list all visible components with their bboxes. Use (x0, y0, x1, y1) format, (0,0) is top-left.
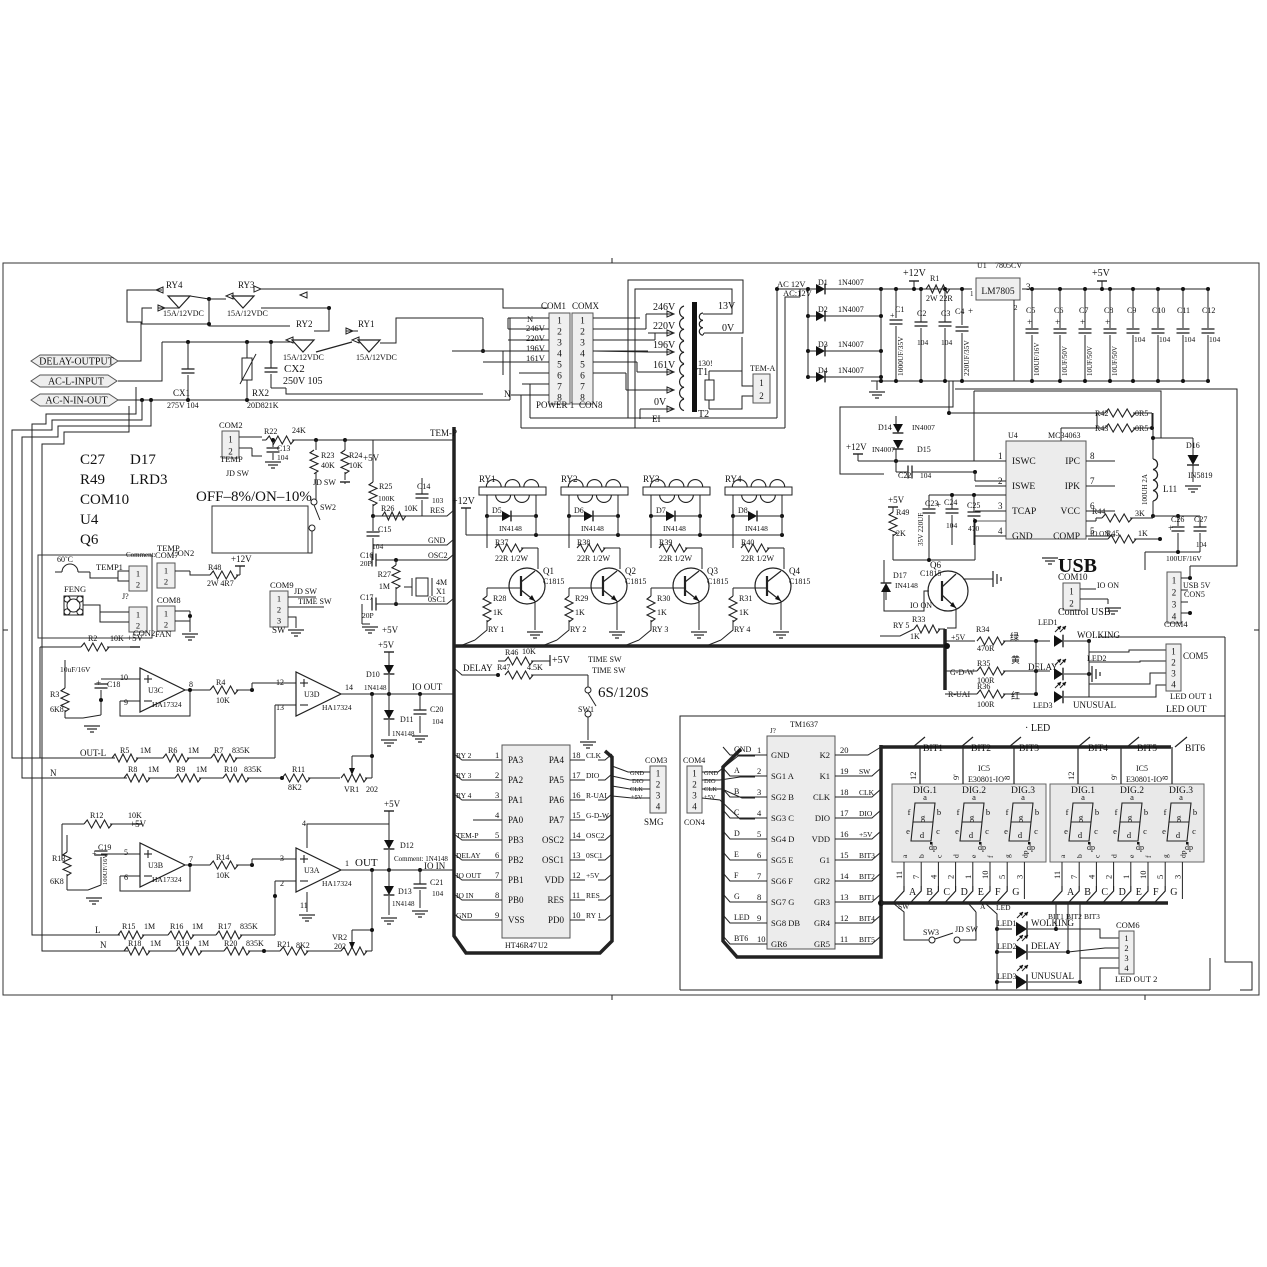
svg-text:10: 10 (757, 934, 766, 944)
svg-text:E: E (978, 887, 984, 898)
svg-text:15A/12VDC: 15A/12VDC (163, 309, 204, 318)
svg-text:+5V: +5V (859, 830, 873, 839)
svg-text:470: 470 (968, 524, 980, 533)
svg-text:D13: D13 (398, 887, 412, 896)
svg-text:1M: 1M (188, 746, 199, 755)
svg-text:4: 4 (580, 350, 585, 360)
svg-text:D15: D15 (917, 445, 931, 454)
svg-text:1: 1 (345, 859, 349, 868)
svg-text:IN5819: IN5819 (1188, 471, 1212, 480)
svg-text:B: B (926, 887, 933, 898)
svg-text:2: 2 (557, 328, 562, 338)
svg-text:+12V: +12V (903, 268, 927, 279)
svg-text:R16: R16 (170, 922, 183, 931)
svg-text:b: b (1095, 807, 1099, 817)
svg-text:AC-L-INPUT: AC-L-INPUT (48, 377, 104, 388)
svg-text:BT6: BT6 (734, 934, 748, 943)
svg-text:IN4007: IN4007 (872, 445, 895, 454)
svg-text:1M: 1M (196, 765, 207, 774)
svg-text:PA4: PA4 (549, 755, 565, 765)
svg-text:c: c (936, 826, 940, 836)
svg-text:IPK: IPK (1065, 482, 1080, 492)
svg-text:10: 10 (980, 871, 990, 880)
svg-text:1N4148: 1N4148 (364, 684, 387, 692)
svg-text:OUT: OUT (355, 857, 378, 869)
svg-text:TIME SW: TIME SW (588, 655, 622, 664)
svg-text:U2: U2 (538, 941, 548, 950)
svg-text:COM9: COM9 (270, 580, 294, 590)
svg-text:R-UAI: R-UAI (586, 791, 607, 800)
svg-text:2: 2 (1104, 875, 1114, 879)
svg-text:1N4007: 1N4007 (838, 366, 864, 375)
svg-text:20P: 20P (360, 559, 372, 568)
svg-text:C11: C11 (1177, 306, 1190, 315)
svg-text:N: N (100, 940, 107, 950)
svg-text:Control USB: Control USB (1058, 607, 1111, 618)
svg-text:2: 2 (280, 879, 284, 888)
svg-text:196V: 196V (653, 340, 676, 351)
svg-text:N: N (50, 768, 57, 778)
svg-text:3: 3 (557, 339, 562, 349)
svg-text:TCAP: TCAP (1012, 507, 1036, 517)
svg-text:10K: 10K (110, 634, 124, 643)
svg-text:R49: R49 (896, 508, 909, 517)
svg-text:D10: D10 (366, 670, 380, 679)
svg-text:2: 2 (580, 328, 585, 338)
svg-text:C1815: C1815 (625, 577, 646, 586)
svg-text:R4: R4 (216, 678, 225, 687)
svg-text:IO OUT: IO OUT (412, 682, 443, 692)
svg-text:RY 3: RY 3 (456, 771, 472, 780)
svg-text:F: F (1153, 887, 1159, 898)
svg-text:1: 1 (998, 451, 1003, 461)
svg-text:Q2: Q2 (625, 566, 636, 576)
svg-text:7: 7 (580, 383, 585, 393)
svg-text:+: + (968, 306, 973, 316)
svg-text:C18: C18 (107, 680, 120, 689)
svg-text:1: 1 (136, 569, 140, 579)
svg-text:f: f (957, 807, 960, 817)
svg-text:C6: C6 (1054, 306, 1063, 315)
svg-text:PB1: PB1 (508, 875, 524, 885)
svg-text:COM2: COM2 (219, 420, 243, 430)
svg-text:TIME SW: TIME SW (592, 666, 626, 675)
svg-text:Q1: Q1 (543, 566, 554, 576)
svg-text:COM10: COM10 (80, 492, 129, 508)
svg-text:b: b (1075, 854, 1084, 858)
svg-text:2: 2 (164, 577, 168, 587)
svg-text:U3C: U3C (148, 686, 163, 695)
svg-text:C21: C21 (430, 878, 443, 887)
svg-text:SW1: SW1 (578, 705, 594, 714)
svg-text:R48: R48 (208, 563, 221, 572)
svg-text:20D821K: 20D821K (247, 401, 279, 410)
svg-text:GR4: GR4 (814, 918, 831, 928)
svg-text:+5V: +5V (384, 799, 401, 809)
svg-text:1: 1 (164, 609, 168, 619)
svg-text:PB2: PB2 (508, 855, 524, 865)
svg-text:104: 104 (1209, 335, 1221, 344)
svg-text:a: a (1130, 792, 1134, 802)
svg-text:D: D (961, 887, 968, 898)
svg-text:GND: GND (704, 770, 718, 777)
svg-text:DIO: DIO (815, 813, 830, 823)
svg-text:1: 1 (692, 769, 697, 779)
svg-text:1M: 1M (198, 939, 209, 948)
svg-text:C: C (943, 887, 950, 898)
svg-text:BIT3: BIT3 (1084, 912, 1100, 921)
svg-text:ISWE: ISWE (1012, 482, 1035, 492)
svg-text:VDD: VDD (545, 875, 565, 885)
svg-text:PA7: PA7 (549, 815, 565, 825)
svg-text:LED: LED (996, 903, 1011, 912)
svg-text:15A/12VDC: 15A/12VDC (283, 353, 324, 362)
svg-text:f: f (1115, 807, 1118, 817)
svg-text:L: L (95, 925, 101, 935)
svg-text:LED3: LED3 (1033, 701, 1053, 710)
svg-text:LED3: LED3 (997, 972, 1017, 981)
svg-text:835K: 835K (240, 922, 258, 931)
svg-text:C3: C3 (941, 309, 950, 318)
svg-text:RES: RES (586, 891, 600, 900)
svg-text:22R 1/2W: 22R 1/2W (495, 554, 529, 563)
svg-text:2: 2 (1014, 304, 1018, 312)
svg-text:VCC: VCC (1060, 507, 1080, 517)
svg-text:FENG: FENG (64, 584, 86, 594)
svg-text:C15: C15 (378, 525, 391, 534)
svg-text:PA6: PA6 (549, 795, 565, 805)
svg-text:E30801-IO: E30801-IO (1126, 775, 1162, 784)
svg-text:+: + (1105, 317, 1110, 327)
svg-text:1: 1 (557, 317, 562, 327)
svg-text:LED1: LED1 (1038, 618, 1058, 627)
svg-text:C12: C12 (1202, 306, 1215, 315)
svg-text:3: 3 (757, 787, 761, 797)
svg-text:MC34063: MC34063 (1048, 431, 1080, 440)
svg-text:4: 4 (692, 802, 697, 812)
svg-text:HT46R47: HT46R47 (505, 941, 537, 950)
svg-text:b: b (937, 807, 941, 817)
svg-text:1K: 1K (1138, 529, 1148, 538)
svg-text:COMP: COMP (1053, 532, 1080, 542)
svg-text:TEMP: TEMP (220, 454, 243, 464)
svg-text:RY1: RY1 (358, 319, 375, 329)
svg-text:GR6: GR6 (771, 939, 787, 949)
svg-text:0SC1: 0SC1 (586, 851, 603, 860)
svg-text:6: 6 (124, 873, 128, 882)
svg-text:OUT-L: OUT-L (80, 748, 106, 758)
svg-text:C20: C20 (430, 705, 443, 714)
svg-text:0V: 0V (654, 397, 667, 408)
svg-text:1: 1 (757, 745, 761, 755)
svg-text:10: 10 (572, 910, 581, 920)
svg-text:1N4007: 1N4007 (838, 278, 864, 287)
svg-text:R2: R2 (88, 634, 97, 643)
svg-text:8: 8 (495, 890, 499, 900)
svg-text:220UF/35V: 220UF/35V (962, 340, 971, 376)
svg-text:R14: R14 (216, 853, 229, 862)
svg-text:D14: D14 (878, 423, 892, 432)
svg-text:R28: R28 (493, 594, 506, 603)
svg-text:RY4: RY4 (166, 280, 183, 290)
svg-text:7: 7 (495, 870, 499, 880)
svg-text:CON8: CON8 (579, 400, 603, 410)
svg-text:3: 3 (1172, 875, 1182, 879)
svg-text:1M: 1M (140, 746, 151, 755)
svg-text:1K: 1K (739, 608, 749, 617)
svg-text:8: 8 (1090, 451, 1095, 461)
svg-text:C27: C27 (1194, 515, 1207, 524)
svg-text:2: 2 (495, 770, 499, 780)
svg-text:R46: R46 (505, 648, 518, 657)
svg-text:Q4: Q4 (789, 566, 800, 576)
svg-text:黄: 黄 (1011, 654, 1020, 665)
svg-text:2: 2 (692, 780, 697, 790)
svg-text:835K: 835K (244, 765, 262, 774)
svg-text:104: 104 (277, 453, 289, 462)
svg-text:10K: 10K (216, 696, 230, 705)
svg-text:15: 15 (572, 810, 581, 820)
svg-text:4: 4 (928, 874, 938, 879)
svg-text:D7: D7 (656, 506, 666, 515)
svg-text:8: 8 (1160, 776, 1170, 780)
svg-text:7805CV: 7805CV (995, 261, 1022, 270)
svg-text:e: e (1064, 826, 1068, 836)
svg-text:6: 6 (757, 850, 761, 860)
svg-text:1000UF/35V: 1000UF/35V (896, 336, 905, 376)
svg-text:D4: D4 (818, 366, 828, 375)
svg-text:D8: D8 (738, 506, 748, 515)
svg-text:RY 1: RY 1 (586, 911, 602, 920)
svg-text:6K8: 6K8 (50, 705, 64, 714)
svg-text:g: g (1161, 854, 1170, 858)
svg-text:6: 6 (580, 372, 585, 382)
svg-text:RES: RES (430, 506, 445, 515)
svg-text:2: 2 (656, 780, 661, 790)
svg-text:D17: D17 (130, 452, 156, 468)
svg-text:RY 5: RY 5 (893, 621, 909, 630)
svg-text:C27: C27 (80, 452, 106, 468)
svg-text:1K: 1K (493, 608, 503, 617)
svg-text:24K: 24K (292, 426, 306, 435)
svg-text:15A/12VDC: 15A/12VDC (356, 353, 397, 362)
svg-text:USB 5V: USB 5V (1183, 581, 1211, 590)
svg-text:c: c (1143, 826, 1147, 836)
svg-text:8K2: 8K2 (288, 783, 302, 792)
svg-text:10K: 10K (522, 647, 536, 656)
svg-text:R36: R36 (977, 682, 990, 691)
svg-text:1: 1 (277, 594, 281, 604)
svg-text:1N4007: 1N4007 (838, 340, 864, 349)
svg-text:f: f (1066, 807, 1069, 817)
svg-text:U3D: U3D (304, 690, 320, 699)
svg-text:4: 4 (557, 350, 562, 360)
svg-text:835K: 835K (246, 939, 264, 948)
svg-text:GND: GND (1012, 532, 1033, 542)
svg-text:SW: SW (898, 902, 910, 911)
svg-text:GND: GND (456, 911, 473, 920)
svg-text:R12: R12 (90, 811, 103, 820)
svg-text:7: 7 (757, 871, 761, 881)
svg-text:R33: R33 (912, 615, 925, 624)
svg-text:R25: R25 (379, 482, 392, 491)
svg-text:7: 7 (1069, 875, 1079, 879)
svg-text:F: F (995, 887, 1001, 898)
svg-text:CLK: CLK (586, 751, 602, 760)
svg-text:14: 14 (572, 830, 581, 840)
svg-text:14: 14 (345, 683, 353, 692)
svg-text:J?: J? (770, 727, 776, 735)
svg-text:RY2: RY2 (296, 319, 313, 329)
svg-text:IN4148: IN4148 (663, 524, 686, 533)
svg-text:a: a (1179, 792, 1183, 802)
svg-text:D17: D17 (893, 571, 907, 580)
svg-text:d: d (1110, 854, 1119, 858)
svg-text:G1: G1 (820, 855, 830, 865)
svg-text:a: a (1021, 792, 1025, 802)
svg-text:WOLKING: WOLKING (1077, 630, 1120, 640)
svg-text:SW3: SW3 (923, 928, 939, 937)
svg-text:9: 9 (757, 913, 761, 923)
svg-text:POWER 1: POWER 1 (536, 400, 574, 410)
svg-text:250V 105: 250V 105 (283, 376, 323, 387)
svg-text:R31: R31 (739, 594, 752, 603)
svg-text:7: 7 (189, 855, 193, 864)
svg-text:3: 3 (998, 501, 1003, 511)
svg-text:10UF/50V: 10UF/50V (1111, 346, 1119, 376)
svg-text:R49: R49 (80, 472, 105, 488)
svg-text:SG3 C: SG3 C (771, 813, 794, 823)
svg-text:SG7 G: SG7 G (771, 897, 794, 907)
svg-text:CLK: CLK (813, 792, 831, 802)
svg-text:f: f (908, 807, 911, 817)
svg-text:9': 9' (951, 774, 961, 780)
svg-text:D3: D3 (818, 340, 828, 349)
svg-text:2: 2 (1171, 658, 1176, 668)
svg-text:22R 1/2W: 22R 1/2W (577, 554, 611, 563)
svg-text:UNUSUAL: UNUSUAL (1073, 700, 1116, 710)
svg-text:5: 5 (124, 848, 128, 857)
svg-text:R30: R30 (657, 594, 670, 603)
svg-text:BIT5: BIT5 (859, 935, 875, 944)
svg-text:GND: GND (771, 750, 789, 760)
svg-text:LRD3: LRD3 (130, 472, 168, 488)
svg-text:AC-N-IN-OUT: AC-N-IN-OUT (45, 396, 107, 407)
svg-text:3: 3 (495, 790, 499, 800)
svg-text:8: 8 (1002, 776, 1012, 780)
svg-text:+: + (1080, 317, 1085, 327)
svg-text:104: 104 (941, 338, 953, 347)
svg-text:CON4: CON4 (684, 818, 705, 827)
svg-text:SW: SW (859, 767, 871, 776)
svg-text:1K: 1K (575, 608, 585, 617)
svg-text:D1: D1 (818, 278, 828, 287)
svg-text:35V 220UF: 35V 220UF (917, 513, 925, 546)
svg-text:14: 14 (840, 871, 849, 881)
svg-text:PB0: PB0 (508, 895, 524, 905)
svg-text:DIO: DIO (586, 771, 600, 780)
svg-text:1: 1 (136, 610, 140, 620)
svg-text:e: e (955, 826, 959, 836)
svg-text:JD SW: JD SW (955, 925, 978, 934)
svg-text:3: 3 (1172, 599, 1177, 609)
svg-text:LED OUT 1: LED OUT 1 (1170, 691, 1212, 701)
svg-text:E30801-IO: E30801-IO (968, 775, 1004, 784)
svg-text:dp: dp (1020, 850, 1029, 858)
svg-text:C17: C17 (360, 593, 373, 602)
svg-text:C4: C4 (955, 307, 964, 316)
svg-text:5: 5 (997, 875, 1007, 879)
svg-text:2: 2 (1172, 587, 1177, 597)
svg-text:104: 104 (432, 889, 444, 898)
svg-text:LM7805: LM7805 (981, 287, 1015, 297)
svg-text:16: 16 (840, 829, 849, 839)
svg-text:DELAY: DELAY (463, 663, 493, 673)
svg-text:T1: T1 (697, 367, 708, 378)
svg-text:1: 1 (164, 566, 168, 576)
svg-text:2: 2 (277, 605, 281, 615)
svg-text:GND: GND (630, 770, 644, 777)
svg-text:J?: J? (122, 592, 129, 601)
svg-text:GND: GND (734, 745, 752, 754)
svg-text:LED2: LED2 (997, 942, 1017, 951)
svg-text:2W 4R7: 2W 4R7 (207, 579, 234, 588)
svg-text:11: 11 (840, 934, 848, 944)
svg-text:13V: 13V (718, 301, 736, 312)
svg-text:1: 1 (963, 875, 973, 879)
svg-text:1N4148: 1N4148 (392, 900, 415, 908)
svg-text:c: c (1192, 826, 1196, 836)
svg-text:COM10: COM10 (1058, 572, 1088, 582)
svg-text:R3: R3 (50, 690, 59, 699)
svg-text:IN4148: IN4148 (745, 524, 768, 533)
svg-text:C: C (1101, 887, 1108, 898)
svg-text:SW: SW (272, 625, 286, 635)
svg-text:RY 4: RY 4 (734, 625, 750, 634)
svg-text:DELAY-OUTPUT: DELAY-OUTPUT (39, 357, 114, 368)
svg-text:Comment:: Comment: (126, 551, 156, 559)
svg-text:TIME SW: TIME SW (298, 597, 332, 606)
svg-text:835K: 835K (232, 746, 250, 755)
svg-text:G: G (1012, 887, 1019, 898)
svg-text:U4: U4 (1008, 431, 1018, 440)
svg-text:F: F (734, 871, 739, 880)
svg-text:IO ON: IO ON (1097, 581, 1119, 590)
svg-text:10: 10 (120, 673, 128, 682)
svg-text:dp: dp (1178, 850, 1187, 858)
svg-text:17: 17 (840, 808, 849, 818)
svg-text:1: 1 (1121, 875, 1131, 879)
svg-text:8: 8 (189, 680, 193, 689)
svg-text:1K: 1K (657, 608, 667, 617)
svg-text:17: 17 (572, 770, 581, 780)
svg-text:SMG: SMG (644, 817, 664, 827)
svg-text:R24: R24 (349, 451, 362, 460)
svg-text:OSC2: OSC2 (542, 835, 564, 845)
svg-text:104: 104 (1134, 335, 1146, 344)
svg-text:R10: R10 (224, 765, 237, 774)
svg-text:DIO: DIO (704, 778, 716, 785)
svg-text:3: 3 (1026, 282, 1031, 292)
svg-text:VR2: VR2 (332, 933, 347, 942)
svg-text:100K: 100K (378, 494, 395, 503)
svg-text:+5V: +5V (363, 453, 380, 463)
svg-text:100UF/16V: 100UF/16V (1033, 343, 1041, 376)
svg-text:D: D (1119, 887, 1126, 898)
svg-text:R9: R9 (176, 765, 185, 774)
svg-text:2: 2 (1124, 943, 1128, 953)
svg-text:1: 1 (970, 290, 974, 298)
